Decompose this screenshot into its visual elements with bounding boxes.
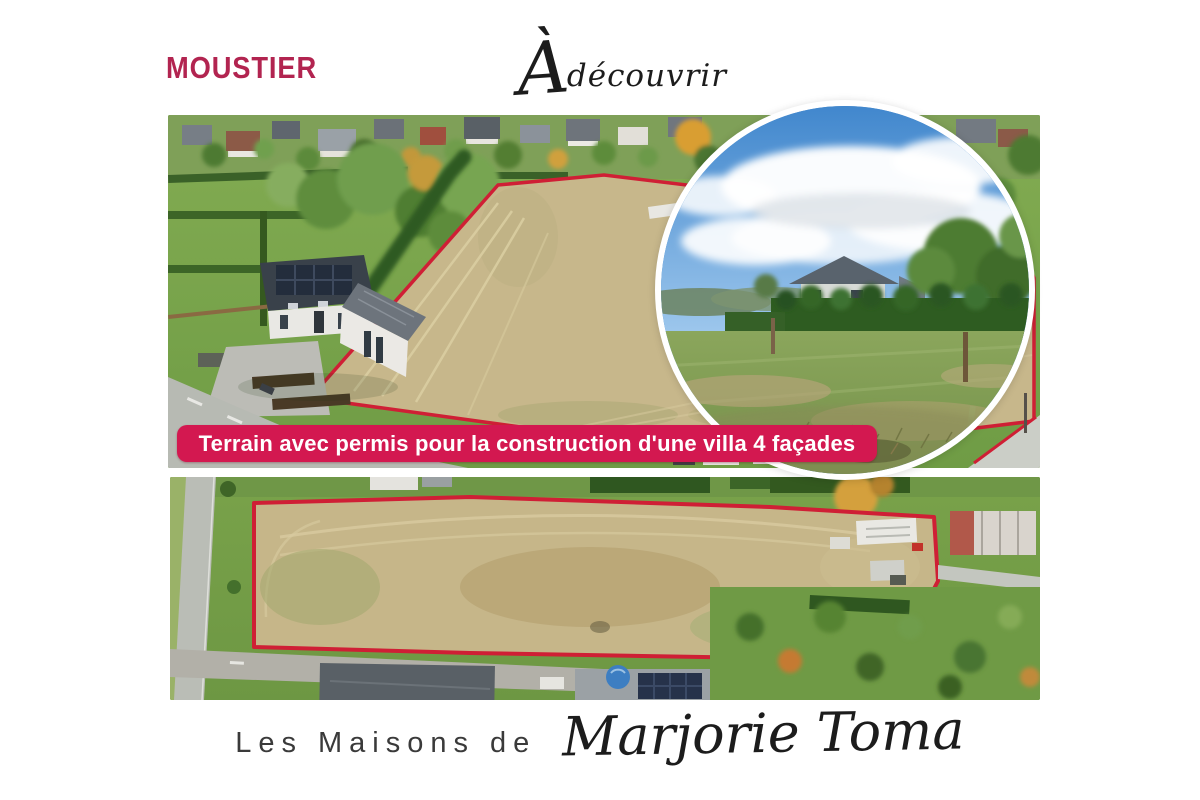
bottom-aerial-photo — [170, 477, 1040, 700]
gardens — [710, 587, 1040, 700]
tagline-script: À découvrir — [492, 10, 752, 102]
flyer-canvas: MOUSTIER À découvrir — [0, 0, 1200, 800]
footer-brand-prefix: Les Maisons de — [235, 727, 536, 760]
tagline-text: découvrir — [567, 61, 727, 102]
caption-banner: Terrain avec permis pour la construction… — [177, 425, 877, 462]
right-sheds — [938, 511, 1040, 591]
footer-brand: Les Maisons de Marjorie Toma — [0, 702, 1200, 800]
inset-photo-illustration — [661, 106, 1029, 474]
footer-brand-signature: Marjorie Toma — [562, 698, 966, 768]
tagline-initial: À — [515, 32, 572, 104]
bottom-photo-illustration — [170, 477, 1040, 700]
location-title: MOUSTIER — [166, 50, 317, 86]
caption-banner-text: Terrain avec permis pour la construction… — [199, 431, 856, 457]
inset-circle-photo — [655, 100, 1035, 480]
